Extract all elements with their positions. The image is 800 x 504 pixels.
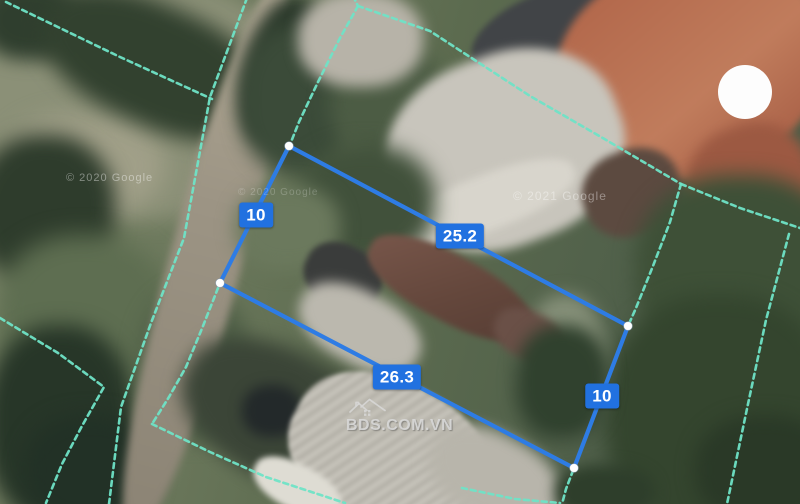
vertex-dot [216, 279, 225, 288]
measurement-label-top: 25.2 [436, 224, 484, 249]
brand-watermark-text: BDS.COM.VN [346, 417, 453, 435]
cadastral-line [109, 0, 247, 504]
cadastral-line [6, 2, 212, 99]
cadastral-line [462, 488, 560, 503]
white-circle-badge [718, 65, 772, 119]
google-credit: © 2021 Google [513, 189, 607, 203]
brand-watermark: BDS.COM.VN [346, 398, 453, 435]
cadastral-line [727, 234, 789, 504]
vertex-dot [624, 322, 633, 331]
vertex-dot [285, 142, 294, 151]
cadastral-line [152, 424, 345, 503]
cadastral-line [358, 6, 681, 184]
cadastral-line [681, 184, 800, 228]
google-credit: © 2020 Google [238, 187, 318, 198]
measurement-label-right: 10 [585, 384, 619, 409]
measurement-label-left: 10 [239, 203, 273, 228]
google-credit: © 2020 Google [66, 172, 153, 184]
cadastral-line [0, 318, 104, 503]
measurement-label-bottom: 26.3 [373, 365, 421, 390]
house-icon [348, 398, 388, 417]
vertex-dot [570, 464, 579, 473]
map-canvas: 25.2 10 26.3 10 © 2020 Google © 2020 Goo… [0, 0, 800, 504]
